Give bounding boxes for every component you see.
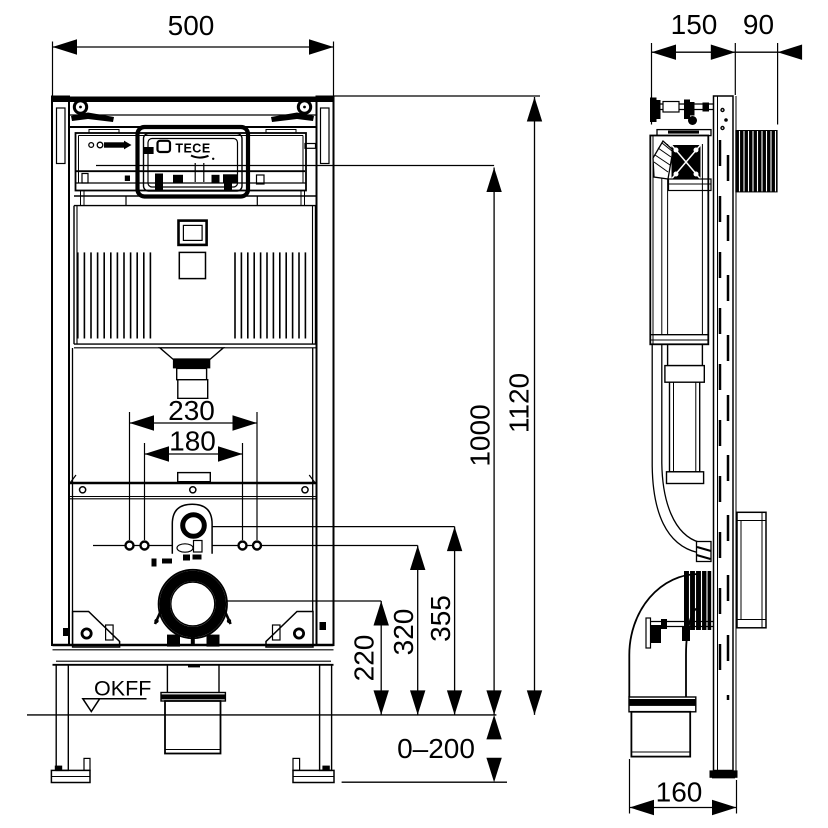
- svg-text:355: 355: [425, 595, 456, 642]
- svg-text:320: 320: [388, 609, 419, 656]
- svg-text:180: 180: [169, 426, 216, 457]
- svg-text:220: 220: [349, 635, 380, 682]
- svg-text:1120: 1120: [504, 373, 535, 433]
- svg-text:0–200: 0–200: [397, 733, 475, 764]
- svg-text:1000: 1000: [465, 404, 496, 466]
- svg-text:90: 90: [743, 9, 774, 40]
- svg-text:160: 160: [656, 777, 703, 808]
- svg-text:230: 230: [168, 395, 215, 426]
- svg-text:150: 150: [671, 9, 718, 40]
- svg-text:OKFF: OKFF: [94, 677, 151, 701]
- svg-text:500: 500: [168, 10, 215, 41]
- svg-text:TECE: TECE: [175, 142, 210, 156]
